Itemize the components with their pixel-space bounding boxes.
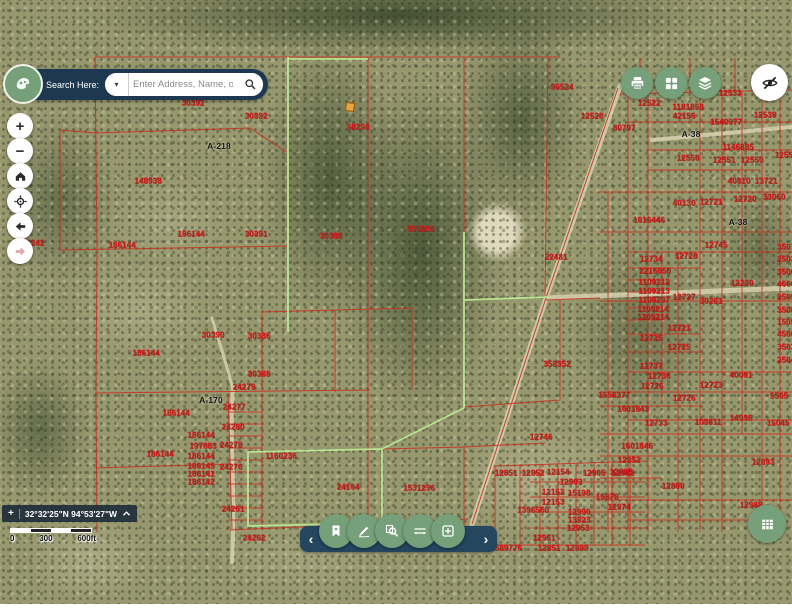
parcel-label: 1160236	[265, 452, 296, 461]
parcel-label: 24164	[337, 483, 360, 492]
search-input[interactable]	[129, 79, 237, 90]
parcel-label: 12851	[495, 469, 518, 478]
plus-icon: +	[16, 118, 25, 135]
parcel-label: A-170	[199, 395, 223, 405]
parcel-label: 186144	[162, 409, 189, 418]
parcel-label: 24262	[243, 534, 266, 543]
scale-bar-line	[10, 528, 92, 533]
parcel-label: 12726	[641, 382, 664, 391]
search-icon	[244, 78, 257, 91]
parcel-label: 12734	[640, 255, 663, 264]
parcel-label: 186144	[187, 431, 214, 440]
add-map-icon	[440, 523, 456, 539]
parcel-label: 12905	[583, 469, 606, 478]
parcel-label: 24279	[233, 383, 256, 392]
hide-ui-button[interactable]	[751, 64, 788, 101]
parcel-label: A-38	[729, 217, 748, 227]
parcel-label: 1109214	[637, 305, 668, 314]
parcel-label: 12736	[648, 372, 671, 381]
parcel-label: 40810	[728, 177, 751, 186]
zoom-out-button[interactable]: −	[7, 138, 33, 164]
parcel-label: 33060	[763, 193, 786, 202]
parcel-label: 1531296	[403, 484, 435, 493]
parcel-label: 12851	[538, 544, 561, 553]
parcel-label: 15045	[767, 419, 790, 428]
parcel-label: 12539	[754, 111, 777, 120]
locate-icon	[13, 194, 28, 209]
next-extent-button[interactable]	[7, 238, 33, 264]
parcel-label: 12899	[566, 544, 589, 553]
parcel-label: 15198	[568, 489, 591, 498]
print-button[interactable]	[621, 67, 653, 99]
app-logo[interactable]	[3, 64, 43, 104]
table-icon	[759, 516, 776, 533]
parcel-label: 12733	[645, 419, 668, 428]
map-canvas[interactable]: 3039230392A-2189829814893818614418614430…	[0, 0, 792, 604]
scale-bar: 0 300 600ft	[10, 528, 96, 543]
home-extent-button[interactable]	[7, 163, 33, 189]
parcel-label: 12725	[668, 343, 691, 352]
gis-map-app: 3039230392A-2189829814893818614418614430…	[0, 0, 792, 612]
parcel-label: 9505	[770, 392, 788, 401]
parcel-label: 186145	[187, 462, 214, 471]
parcel-label: 1016446	[633, 216, 665, 225]
parcel-label: A-218	[207, 141, 231, 151]
parcel-label: 12974	[608, 503, 631, 512]
parcel-label: 1601846	[621, 442, 653, 451]
parcel-label: 1396560	[517, 506, 549, 515]
parcel-label: 12903	[560, 478, 583, 487]
parcel-label: 1209214	[637, 313, 669, 322]
parcel-label: 1540977	[710, 118, 742, 127]
pencil-icon	[356, 523, 372, 539]
parcel-label: 12735	[640, 334, 663, 343]
parcel-label: 12737	[640, 362, 663, 371]
parcel-label: 99524	[551, 83, 574, 92]
parcel-label: 186144	[146, 450, 173, 459]
parcel-label: 12852	[522, 469, 545, 478]
parcel-label: 598268	[407, 225, 434, 234]
parcel-label: 4506	[777, 330, 792, 339]
parcel-label: 40001	[730, 371, 753, 380]
parcel-label: 22481	[545, 253, 568, 262]
minus-icon: −	[16, 143, 25, 160]
toolbar-next-button[interactable]: ›	[475, 526, 497, 552]
parcel-label: 24280	[222, 423, 245, 432]
layers-icon	[697, 75, 713, 91]
my-location-button[interactable]	[7, 188, 33, 214]
search-button[interactable]	[237, 73, 263, 96]
parcel-label: 30386	[248, 332, 271, 341]
parcel-label: 2503	[777, 255, 792, 264]
parcel-label: 12550	[741, 156, 764, 165]
parcel-label: 12551	[713, 156, 736, 165]
roads	[212, 86, 792, 562]
arrow-right-icon	[13, 244, 28, 259]
parcel-label: 13923	[568, 516, 591, 525]
parcel-label: 3508	[777, 306, 792, 315]
parcel-label: 1181858	[672, 103, 703, 112]
parcel-label: 186144	[108, 241, 135, 250]
parcel-label: 109811	[695, 418, 722, 427]
zoom-in-button[interactable]: +	[7, 113, 33, 139]
parcel-label: 12230	[731, 279, 754, 288]
parcel-label: 12720	[734, 195, 757, 204]
parcel-label: 12953	[567, 524, 590, 533]
parcel-label: 12727	[673, 293, 696, 302]
parcel-label: A-38	[682, 129, 701, 139]
parcel-label: 24278	[220, 441, 243, 450]
parcel-label: 1558377	[598, 391, 630, 400]
measure-icon	[412, 523, 428, 539]
bookmark-icon	[328, 523, 344, 539]
parcel-label: 19878	[596, 493, 619, 502]
parcel-label: 13721	[755, 177, 778, 186]
scale-tick: 300	[39, 534, 52, 543]
apps-grid-icon	[664, 76, 679, 91]
parcel-label: 1109212	[638, 278, 669, 287]
parcel-label: 12522	[638, 99, 661, 108]
crosshair-icon: +	[8, 508, 14, 519]
parcel-label: 1146885	[722, 143, 753, 152]
parcel-label: 24261	[222, 505, 245, 514]
parcel-label: 12893	[752, 458, 775, 467]
add-data-button[interactable]	[431, 514, 465, 548]
parcel-label: 12152	[542, 488, 565, 497]
parcel-label: 186144	[187, 452, 214, 461]
parcel-label: 14936	[730, 414, 753, 423]
coordinate-bar: + 32°32'25"N 94°53'27"W	[2, 505, 137, 522]
parcel-label: 358352	[543, 360, 570, 369]
parcel-label: 1109213	[638, 287, 669, 296]
eye-slash-icon	[761, 74, 779, 92]
parcel-lines-red	[60, 57, 792, 546]
parcel-label: 12745	[705, 241, 728, 250]
home-icon	[13, 169, 28, 184]
divider	[19, 509, 20, 519]
parcel-label: 12726	[673, 394, 696, 403]
parcel-label: 1601843	[617, 405, 649, 414]
parcel-label: 24277	[223, 403, 246, 412]
scale-tick: 600ft	[77, 534, 96, 543]
map-marker[interactable]	[345, 102, 355, 112]
printer-icon	[629, 75, 646, 92]
parcel-label: 12555	[775, 151, 792, 160]
parcel-lines-green	[248, 57, 549, 526]
parcel-label: 186144	[177, 230, 204, 239]
parcel-label: 12728	[675, 252, 698, 261]
search-bar: Search Here: ▾	[12, 69, 268, 100]
caret-down-icon: ▾	[115, 80, 119, 89]
logo-emblem	[12, 73, 34, 95]
parcel-label: 1109207	[638, 296, 669, 305]
parcel-label: 12154	[547, 468, 570, 477]
parcel-label: 98298	[347, 123, 370, 132]
chevron-up-icon[interactable]	[122, 510, 131, 517]
parcel-label: 12721	[700, 198, 723, 207]
parcel-label: 24276	[220, 463, 243, 472]
parcel-label: 3503	[777, 343, 792, 352]
parcel-label: 40130	[673, 199, 696, 208]
parcel-label: 30281	[700, 297, 723, 306]
bottom-margin	[0, 604, 792, 612]
parcel-label: 12852	[618, 456, 641, 465]
parcel-label: 12533	[719, 89, 742, 98]
parcel-label: 12982	[612, 469, 635, 478]
parcel-label: 2216650	[639, 267, 671, 276]
search-label: Search Here:	[46, 80, 99, 90]
parcel-label: 12746	[530, 433, 553, 442]
layers-button[interactable]	[689, 67, 721, 99]
parcel-label: 186144	[132, 349, 159, 358]
parcel-label: 12721	[668, 324, 691, 333]
parcel-label: 12951	[533, 534, 556, 543]
parcel-label: 3506	[777, 268, 792, 277]
parcel-label: 30388	[320, 232, 343, 241]
attribute-table-button[interactable]	[748, 505, 786, 543]
parcel-label: 2504	[777, 356, 792, 365]
parcel-label: 197683	[189, 442, 216, 451]
parcel-label: 42156	[673, 112, 696, 121]
coordinates-readout: 32°32'25"N 94°53'27"W	[25, 509, 117, 519]
parcel-label: 186142	[187, 478, 214, 487]
parcel-label: 12985	[610, 468, 633, 477]
parcel-label: 12550	[677, 154, 700, 163]
search-box: ▾	[105, 73, 263, 96]
parcel-label: 80797	[613, 124, 636, 133]
parcel-label: 30390	[202, 331, 225, 340]
basemap-gallery-button[interactable]	[655, 67, 687, 99]
scale-tick: 0	[10, 534, 14, 543]
parcel-label: 12153	[542, 498, 565, 507]
parcel-label: 30388	[248, 370, 271, 379]
parcel-label: 186141	[187, 470, 214, 479]
magnifier-doc-icon	[384, 523, 400, 539]
parcel-label: 30392	[245, 112, 268, 121]
parcel-label: 12990	[568, 508, 591, 517]
arrow-left-icon	[13, 219, 28, 234]
parcel-label: 4606	[777, 280, 792, 289]
parcel-label: 148938	[134, 177, 161, 186]
previous-extent-button[interactable]	[7, 213, 33, 239]
parcel-label: 12890	[662, 482, 685, 491]
parcel-label: 1505	[777, 318, 792, 327]
search-type-dropdown[interactable]: ▾	[105, 73, 129, 96]
parcel-label: 2505	[777, 293, 792, 302]
parcel-label: 3507	[777, 243, 792, 252]
parcel-label: 12723	[700, 381, 723, 390]
parcel-label: 30391	[245, 230, 268, 239]
parcel-label: 12528	[581, 112, 604, 121]
